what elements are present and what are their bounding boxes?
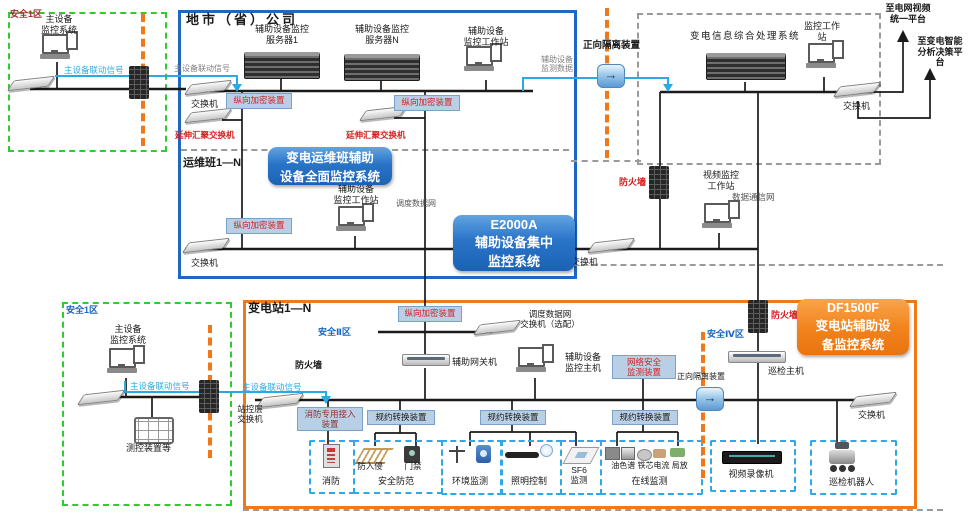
computer-icon: [516, 347, 556, 379]
server1-label: 辅助设备监控 服务器1: [240, 24, 324, 45]
anti-intrusion-label: 防入侵: [352, 461, 388, 471]
patrol-host-label: 巡检主机: [768, 366, 804, 377]
video-recorder-icon: [722, 451, 782, 464]
linkage-signal-label: 主设备联动信号: [174, 64, 230, 73]
switch-label: 交换机: [191, 258, 218, 269]
gateway-appliance-icon: [402, 354, 450, 366]
ops-team-title: 运维班1—N: [183, 157, 241, 170]
server-icon: [344, 54, 420, 81]
firewall-icon: [199, 380, 219, 413]
workstation-label: 辅助设备 监控工作站: [452, 26, 520, 47]
lighting-group-label: 照明控制: [500, 476, 558, 487]
online-monitor-icon: [653, 449, 666, 458]
main-equipment-system-label: 主设备 监控系统: [100, 324, 156, 345]
substation-title: 变电站1—N: [248, 301, 311, 315]
longitudinal-encryptor-box: 纵向加密装置: [394, 95, 460, 111]
online-items-label: 油色谱 铁芯电流 局放: [600, 461, 699, 470]
zone4-label: 安全Ⅳ区: [707, 329, 744, 340]
security-group-label: 安全防范: [355, 476, 437, 487]
online-monitor-icon: [670, 448, 685, 457]
patrol-host-appliance-icon: [728, 351, 786, 363]
protocol-converter-box: 规约转换装置: [480, 410, 546, 425]
vcr-group-box: [710, 440, 796, 492]
to-analysis-platform-label: 至变电智能 分析决策平 台: [911, 36, 968, 68]
ops-system-badge: 变电运维班辅助 设备全面监控系统: [268, 147, 392, 185]
oil-chromatograph-icon: [605, 447, 620, 460]
aux-monitoring-data-label: 辅助设备 监测数据: [534, 55, 580, 74]
switch-label: 交换机: [843, 101, 870, 112]
dispatch-network-label: 调度数据网: [396, 199, 436, 208]
firewall-label: 防火墙: [295, 360, 322, 371]
aggregation-switch-label: 延伸汇聚交换机: [175, 130, 235, 140]
environment-device-icon: [476, 445, 491, 463]
monitor-workstation-label: 监控工作 站: [796, 21, 848, 42]
protocol-converter-box: 规约转换装置: [367, 410, 435, 425]
zone-label: 安全1区: [66, 305, 98, 316]
longitudinal-encryptor-box: 纵向加密装置: [226, 93, 292, 109]
computer-icon: [702, 203, 742, 235]
diagram-canvas: 安全1区 主设备 监控系统 主设备联动信号 地市（省）公司 辅助设备监控 服务器…: [0, 0, 968, 525]
server-icon: [706, 53, 786, 80]
df1500f-badge: DF1500F 变电站辅助设 备监控系统: [797, 299, 909, 355]
network-security-monitor-box: 网络安全 监测装置: [612, 355, 676, 379]
e2000a-badge: E2000A 辅助设备集中 监控系统: [453, 215, 575, 271]
longitudinal-encryptor-box: 纵向加密装置: [398, 306, 462, 322]
computer-icon: [107, 348, 147, 380]
ops-workstation-label: 辅助设备 监控工作站: [324, 184, 388, 205]
forward-isolation-device-icon: [696, 387, 724, 411]
info-processing-system-label: 变电信息综合处理系统: [690, 31, 800, 42]
switch-label: 交换机: [191, 99, 218, 110]
linkage-signal-label: 主设备联动信号: [64, 65, 124, 75]
environment-group-label: 环境监测: [441, 476, 499, 487]
fire-access-device-box: 消防专用接入 装置: [297, 407, 363, 431]
light-bulb-icon: [540, 444, 553, 457]
measurement-device-label: 测控装置等: [126, 443, 171, 454]
measurement-device-icon: [134, 417, 174, 444]
forward-isolation-label: 正向隔离装置: [583, 40, 640, 51]
linkage-signal-label: 主设备联动信号: [130, 381, 190, 391]
station-switch-label: 站控层 交换机: [233, 404, 267, 424]
core-current-monitor-icon: [621, 447, 635, 460]
patrol-robot-icon: [827, 442, 857, 474]
firewall-icon: [649, 166, 669, 199]
access-control-label: 门禁: [400, 461, 426, 471]
online-group-label: 在线监测: [600, 476, 699, 487]
to-video-platform-label: 至电网视频 统一平台: [880, 3, 936, 24]
serverN-label: 辅助设备监控 服务器N: [340, 24, 424, 45]
firewall-label: 防火墙: [771, 310, 798, 321]
linkage-signal-label: 主设备联动信号: [242, 382, 302, 392]
zone2-label: 安全Ⅱ区: [318, 327, 351, 338]
main-equipment-system-label: 主设备 监控系统: [30, 14, 88, 35]
protocol-converter-box: 规约转换装置: [612, 410, 678, 425]
switch-label: 交换机: [858, 410, 885, 421]
switch-label: 交换机: [571, 257, 598, 268]
forward-isolation-device-icon: [597, 64, 625, 88]
firewall-icon: [129, 66, 149, 99]
data-network-label: 数据通信网: [732, 192, 775, 202]
computer-icon: [806, 43, 846, 75]
vcr-label: 视频录像机: [710, 469, 792, 480]
robot-label: 巡检机器人: [810, 477, 893, 488]
computer-icon: [40, 34, 80, 66]
weather-sensor-icon: [449, 446, 465, 463]
fire-group-label: 消防: [311, 476, 351, 487]
dispatch-switch-label: 调度数据网 交换机（选配）: [514, 309, 586, 329]
video-workstation-label: 视频监控 工作站: [694, 170, 748, 191]
gateway-label: 辅助网关机: [452, 357, 497, 368]
sf6-group-label: SF6 监测: [560, 465, 598, 485]
longitudinal-encryptor-box: 纵向加密装置: [226, 218, 292, 234]
forward-isolation-label: 正向隔离装置: [677, 372, 725, 381]
aux-host-label: 辅助设备 监控主机: [556, 352, 610, 373]
server-icon: [244, 52, 320, 79]
lighting-controller-icon: [505, 452, 539, 458]
partial-discharge-monitor-icon: [637, 449, 652, 461]
firewall-icon: [748, 300, 768, 333]
computer-icon: [464, 46, 504, 78]
aggregation-switch-label: 延伸汇聚交换机: [346, 130, 406, 140]
computer-icon: [336, 206, 376, 238]
firewall-label: 防火墙: [619, 177, 646, 188]
fire-alarm-panel-icon: [323, 444, 340, 468]
